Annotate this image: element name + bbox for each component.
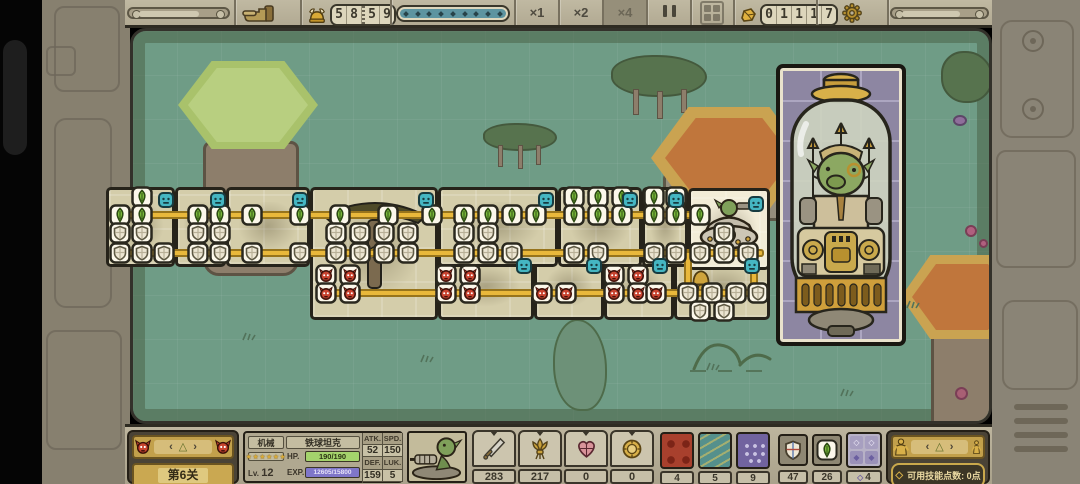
wave-progress-bar bbox=[396, 5, 510, 22]
digit-cell: 0 bbox=[762, 6, 777, 24]
shield-node[interactable] bbox=[453, 242, 475, 264]
shield-node[interactable] bbox=[131, 222, 153, 244]
demon-node[interactable] bbox=[645, 282, 667, 304]
skill-points-banner[interactable]: ◇ 可用技能点数: 0点 bbox=[891, 463, 985, 484]
exp-label: EXP. bbox=[287, 468, 304, 477]
shield-node[interactable] bbox=[109, 242, 131, 264]
demon-node[interactable] bbox=[603, 282, 625, 304]
shield-node[interactable] bbox=[131, 242, 153, 264]
shield-node[interactable] bbox=[187, 222, 209, 244]
harvest-counter-value: 217 bbox=[518, 469, 562, 484]
deck-card-red[interactable] bbox=[660, 432, 694, 469]
deck-card-teal-count: 5 bbox=[698, 471, 732, 484]
unit-name-label: 铁球坦克 bbox=[286, 436, 360, 449]
tile-badge-icon bbox=[516, 258, 532, 274]
leaf-gem-icon bbox=[816, 439, 838, 461]
shield-node[interactable] bbox=[289, 242, 311, 264]
demon-node[interactable] bbox=[555, 282, 577, 304]
diamond-grid-item-slot[interactable]: ◇ ◇ ◆ ◆ bbox=[846, 432, 882, 468]
attack-counter-button[interactable] bbox=[472, 430, 516, 467]
diamond-grid-icon: ◇ bbox=[865, 436, 878, 449]
heart-counter-button[interactable] bbox=[564, 430, 608, 467]
next-skill-chevron[interactable]: › bbox=[950, 442, 954, 453]
tile-badge-icon bbox=[748, 196, 764, 212]
tile-badge-icon bbox=[210, 192, 226, 208]
unit-class-label: 机械 bbox=[248, 436, 284, 449]
hero-figure-icon[interactable] bbox=[893, 438, 909, 456]
tile-badge-icon bbox=[158, 192, 174, 208]
shield-node[interactable] bbox=[187, 242, 209, 264]
shield-item-slot[interactable] bbox=[778, 434, 808, 466]
demon-node[interactable] bbox=[315, 282, 337, 304]
speed-x4-button[interactable]: ×4 bbox=[604, 0, 646, 25]
deck-card-red-count: 4 bbox=[660, 471, 694, 484]
digit-cell: 5 bbox=[365, 6, 380, 24]
level-panel: ‹ △ › 第6关 bbox=[127, 430, 239, 484]
speed-x2-button[interactable]: ×2 bbox=[560, 0, 602, 25]
progress-dot bbox=[462, 11, 468, 17]
demon-node[interactable] bbox=[339, 282, 361, 304]
right-scroll-slider[interactable] bbox=[890, 7, 989, 19]
progress-dot bbox=[485, 11, 491, 17]
shield-node[interactable] bbox=[713, 222, 735, 244]
slim-figure-icon[interactable] bbox=[970, 438, 983, 456]
tile-badge-icon bbox=[652, 258, 668, 274]
shield-node[interactable] bbox=[397, 222, 419, 244]
tile-badge-icon bbox=[538, 192, 554, 208]
deck-card-purple[interactable] bbox=[736, 432, 770, 469]
gold-nugget-icon bbox=[739, 7, 757, 23]
shield-item-count: 47 bbox=[778, 470, 808, 484]
hp-label: HP. bbox=[287, 452, 299, 461]
deck-card-purple-count: 9 bbox=[736, 471, 770, 484]
shield-node[interactable] bbox=[349, 222, 371, 244]
unit-portrait bbox=[407, 431, 467, 483]
shield-node[interactable] bbox=[453, 222, 475, 244]
diamond-item-count: ◇ 4 bbox=[846, 470, 882, 484]
tile-badge-icon bbox=[744, 258, 760, 274]
shield-node[interactable] bbox=[349, 242, 371, 264]
progress-dot bbox=[403, 11, 409, 17]
tile-badge-icon bbox=[622, 192, 638, 208]
exp-bar: 12605/15800 bbox=[305, 467, 360, 478]
star-rating: ★★★★★★ bbox=[248, 452, 284, 461]
skill-panel: ‹ △ › ◇ 可用技能点数: 0点 bbox=[886, 430, 990, 484]
progress-dot bbox=[427, 11, 433, 17]
attack-counter-value: 283 bbox=[472, 469, 516, 484]
settings-button[interactable] bbox=[818, 0, 886, 25]
shield-node[interactable] bbox=[153, 242, 175, 264]
progress-dot bbox=[450, 11, 456, 17]
shield-node[interactable] bbox=[665, 242, 687, 264]
shield-node[interactable] bbox=[713, 242, 735, 264]
gear-icon bbox=[841, 2, 863, 24]
tile-badge-icon bbox=[292, 192, 308, 208]
harvest-counter-button[interactable] bbox=[518, 430, 562, 467]
leaf-gem-item-slot[interactable] bbox=[812, 434, 842, 466]
level-label: 第6关 bbox=[158, 468, 209, 483]
shield-icon bbox=[782, 439, 804, 461]
shield-node[interactable] bbox=[747, 282, 769, 304]
grid-dots-icon bbox=[700, 1, 724, 25]
shield-node[interactable] bbox=[373, 242, 395, 264]
shield-node[interactable] bbox=[477, 242, 499, 264]
tile-badge-icon bbox=[586, 258, 602, 274]
shield-node[interactable] bbox=[689, 300, 711, 322]
gem-node[interactable] bbox=[587, 204, 609, 226]
unit-counter: 5859 bbox=[307, 4, 396, 26]
hand-cursor-button[interactable] bbox=[241, 3, 275, 30]
digit-cell: 5 bbox=[332, 6, 347, 24]
sword-icon bbox=[482, 437, 506, 461]
shield-node[interactable] bbox=[241, 242, 263, 264]
progress-dot bbox=[415, 11, 421, 17]
shield-node[interactable] bbox=[209, 242, 231, 264]
demon-node[interactable] bbox=[531, 282, 553, 304]
prev-unit-chevron[interactable]: ‹ bbox=[169, 442, 173, 453]
stat-grid: ATK. SPD. 52 150 DEF. LUK. 159 5 bbox=[362, 433, 403, 483]
goblin-cannon-portrait bbox=[409, 433, 464, 480]
shield-node[interactable] bbox=[477, 222, 499, 244]
shield-node[interactable] bbox=[713, 300, 735, 322]
shield-node[interactable] bbox=[563, 242, 585, 264]
tile-badge-icon bbox=[668, 192, 684, 208]
demon-node[interactable] bbox=[435, 282, 457, 304]
bouquet-icon bbox=[529, 437, 551, 461]
boss-capsule-card[interactable] bbox=[776, 64, 906, 346]
shield-node[interactable] bbox=[325, 242, 347, 264]
progress-dot bbox=[438, 11, 444, 17]
medal-counter-button[interactable] bbox=[610, 430, 654, 467]
diamond-grid-icon: ◆ bbox=[850, 451, 863, 464]
shield-node[interactable] bbox=[209, 222, 231, 244]
progress-dot bbox=[497, 11, 503, 17]
gem-node[interactable] bbox=[643, 204, 665, 226]
heart-counter-value: 0 bbox=[564, 469, 608, 484]
shield-node[interactable] bbox=[373, 222, 395, 244]
unit-counter-display: 5859 bbox=[330, 4, 396, 26]
hp-bar: 190/190 bbox=[305, 451, 360, 462]
gem-node[interactable] bbox=[241, 204, 263, 226]
next-unit-chevron[interactable]: › bbox=[193, 442, 197, 453]
hand-cursor-icon bbox=[241, 3, 275, 25]
gem-node[interactable] bbox=[501, 204, 523, 226]
helmet-icon bbox=[307, 7, 327, 24]
game-screen: 5859 ×1 ×2 ×4 01117 bbox=[0, 0, 1080, 484]
unit-stats-panel: 机械 铁球坦克 ★★★★★★ HP. 190/190 Lv. 12 EXP. 1… bbox=[243, 431, 403, 483]
medal-counter-value: 0 bbox=[610, 469, 654, 484]
diamond-icon: ◇ bbox=[895, 470, 903, 481]
speed-x1-button[interactable]: ×1 bbox=[516, 0, 558, 25]
progress-dot bbox=[474, 11, 480, 17]
heart-icon bbox=[575, 438, 598, 459]
digit-cell: 8 bbox=[347, 6, 362, 24]
medal-icon bbox=[621, 438, 643, 460]
bottom-bar: ‹ △ › 第6关 机械 铁球坦克 ★★★★★★ HP. 190/1 bbox=[125, 424, 992, 484]
demon-node[interactable] bbox=[459, 282, 481, 304]
pause-icon bbox=[660, 5, 678, 20]
skill-selector-triangle: △ bbox=[935, 442, 943, 453]
demon-head-icon[interactable] bbox=[134, 439, 152, 455]
tile-badge-icon bbox=[418, 192, 434, 208]
top-bar: 5859 ×1 ×2 ×4 01117 bbox=[125, 0, 992, 28]
level-value-label: Lv. 12 bbox=[248, 467, 273, 479]
goblin-capsule-boss bbox=[780, 68, 902, 342]
prev-skill-chevron[interactable]: ‹ bbox=[926, 442, 930, 453]
skill-points-text: 可用技能点数: 0点 bbox=[907, 469, 981, 482]
unit-selector-triangle: △ bbox=[179, 442, 187, 453]
level-banner: 第6关 bbox=[132, 463, 234, 484]
demon-head-icon[interactable] bbox=[214, 439, 232, 455]
digit-cell: 1 bbox=[777, 6, 792, 24]
tile-chain bbox=[0, 0, 1080, 484]
deck-card-teal[interactable] bbox=[698, 432, 732, 469]
pause-button[interactable] bbox=[648, 0, 690, 25]
digit-cell: 1 bbox=[792, 6, 807, 24]
gem-node[interactable] bbox=[689, 204, 711, 226]
shield-node[interactable] bbox=[689, 242, 711, 264]
shield-node[interactable] bbox=[397, 242, 419, 264]
left-scroll-slider[interactable] bbox=[127, 7, 230, 19]
gem-node[interactable] bbox=[563, 204, 585, 226]
formation-grid-button[interactable] bbox=[692, 0, 731, 25]
shield-node[interactable] bbox=[109, 222, 131, 244]
diamond-grid-icon: ◇ bbox=[850, 436, 863, 449]
diamond-grid-icon: ◆ bbox=[865, 451, 878, 464]
leaf-gem-item-count: 26 bbox=[812, 470, 842, 484]
shield-node[interactable] bbox=[325, 222, 347, 244]
